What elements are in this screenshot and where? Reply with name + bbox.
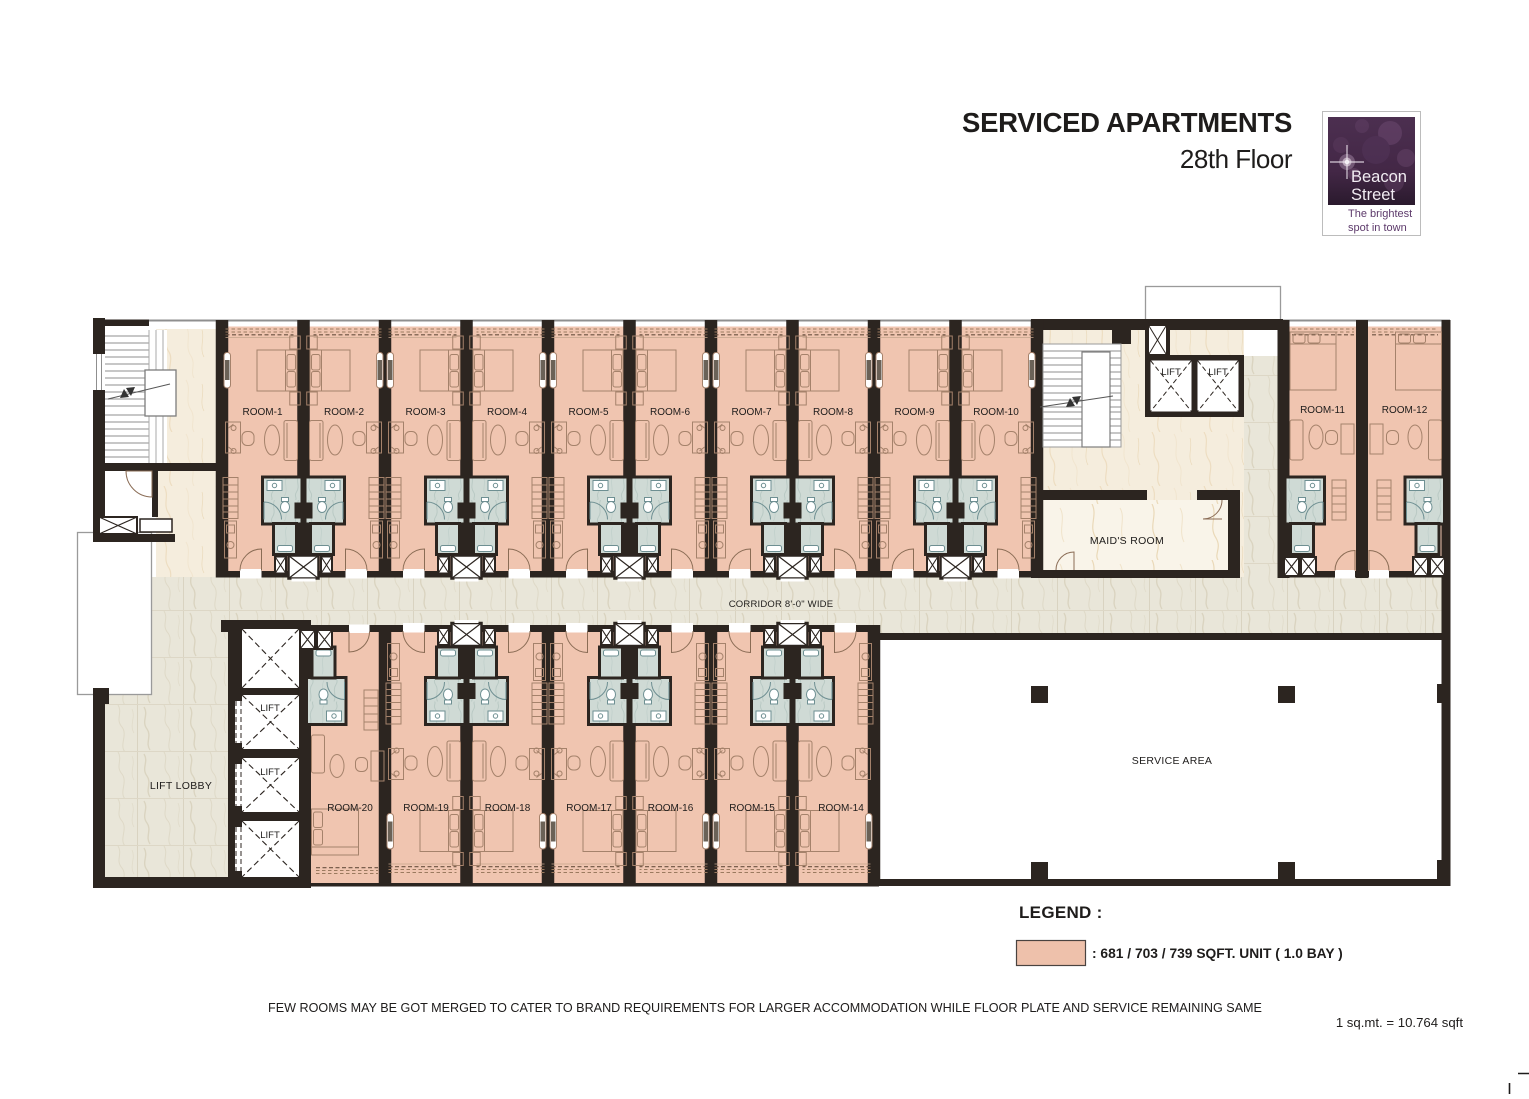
svg-text:ROOM-16: ROOM-16 [648,803,694,814]
svg-text:ROOM-20: ROOM-20 [327,803,373,814]
svg-text:Beacon: Beacon [1351,168,1407,186]
svg-text:1 sq.mt. = 10.764 sqft: 1 sq.mt. = 10.764 sqft [1336,1015,1464,1030]
svg-text:LIFT: LIFT [1161,367,1181,378]
svg-text:FEW ROOMS MAY BE GOT MERGED TO: FEW ROOMS MAY BE GOT MERGED TO CATER TO … [268,1001,1262,1015]
svg-text:ROOM-17: ROOM-17 [566,803,612,814]
svg-text:ROOM-10: ROOM-10 [973,407,1019,418]
svg-text:LIFT: LIFT [1208,367,1228,378]
svg-text:ROOM-7: ROOM-7 [732,407,772,418]
svg-text:Street: Street [1351,186,1395,204]
svg-text:ROOM-1: ROOM-1 [243,407,283,418]
svg-text:ROOM-5: ROOM-5 [569,407,609,418]
svg-text:LIFT: LIFT [260,703,280,714]
svg-text:spot in town: spot in town [1348,222,1407,234]
svg-text:LIFT LOBBY: LIFT LOBBY [150,780,212,792]
svg-text:: 681 / 703 / 739 SQFT. UNIT (: : 681 / 703 / 739 SQFT. UNIT ( 1.0 BAY ) [1092,946,1343,961]
svg-text:LEGEND :: LEGEND : [1019,903,1103,922]
svg-text:28th Floor: 28th Floor [1180,144,1293,174]
svg-text:ROOM-2: ROOM-2 [324,407,364,418]
svg-text:ROOM-11: ROOM-11 [1300,405,1345,416]
svg-text:ROOM-6: ROOM-6 [650,407,690,418]
svg-text:ROOM-15: ROOM-15 [729,803,775,814]
svg-text:SERVICED APARTMENTS: SERVICED APARTMENTS [962,107,1292,138]
svg-text:ROOM-3: ROOM-3 [406,407,446,418]
svg-text:ROOM-8: ROOM-8 [813,407,853,418]
svg-text:ROOM-19: ROOM-19 [403,803,449,814]
svg-text:ROOM-18: ROOM-18 [485,803,531,814]
svg-text:The brightest: The brightest [1348,208,1412,220]
svg-text:CORRIDOR 8'-0" WIDE: CORRIDOR 8'-0" WIDE [729,599,834,610]
svg-text:LIFT: LIFT [260,830,280,841]
svg-text:SERVICE AREA: SERVICE AREA [1132,755,1212,767]
svg-text:ROOM-14: ROOM-14 [818,803,864,814]
svg-text:LIFT: LIFT [260,767,280,778]
svg-text:ROOM-4: ROOM-4 [487,407,527,418]
svg-text:ROOM-9: ROOM-9 [895,407,935,418]
svg-text:MAID'S ROOM: MAID'S ROOM [1090,535,1164,547]
svg-text:ROOM-12: ROOM-12 [1382,405,1428,416]
